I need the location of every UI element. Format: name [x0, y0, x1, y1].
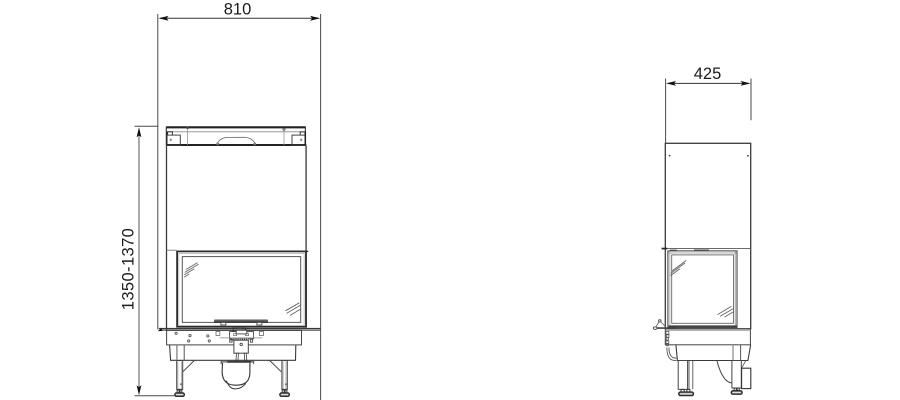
svg-text:425: 425	[694, 65, 722, 83]
svg-text:1350-1370: 1350-1370	[119, 228, 137, 311]
svg-text:810: 810	[224, 1, 252, 19]
